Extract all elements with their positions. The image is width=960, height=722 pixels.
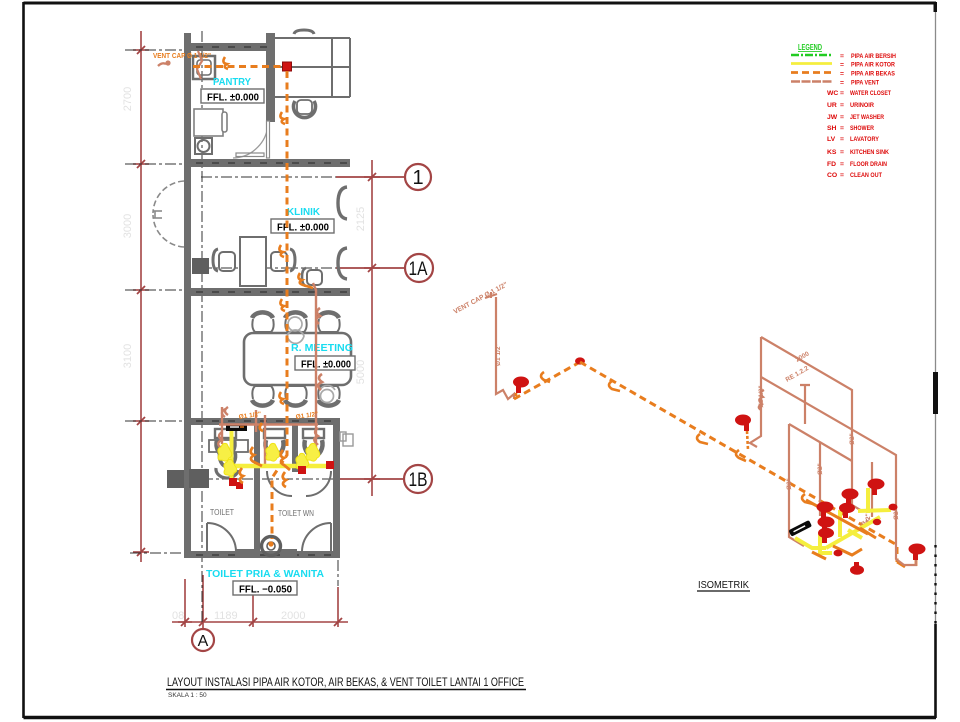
svg-text:2000: 2000 — [281, 610, 305, 622]
svg-text:1A: 1A — [409, 259, 428, 280]
svg-text:CO: CO — [827, 172, 837, 179]
svg-text:WC: WC — [827, 90, 838, 97]
svg-text:Ø2": Ø2" — [786, 478, 793, 490]
svg-text:R. MEETING: R. MEETING — [291, 343, 353, 354]
svg-text:=: = — [840, 125, 844, 132]
svg-text:1B: 1B — [409, 470, 428, 491]
svg-text:1189: 1189 — [214, 610, 238, 622]
svg-text:=: = — [840, 90, 844, 97]
svg-text:UR: UR — [827, 102, 837, 109]
svg-text:FFL. −0.050: FFL. −0.050 — [239, 585, 292, 596]
svg-text:FFL. ±0.000: FFL. ±0.000 — [301, 360, 351, 371]
svg-text:SKALA 1 : 50: SKALA 1 : 50 — [168, 692, 207, 699]
svg-text:FD: FD — [827, 161, 836, 168]
svg-text:SH: SH — [827, 125, 837, 132]
svg-text:=: = — [840, 136, 844, 143]
svg-text:FFL. ±0.000: FFL. ±0.000 — [207, 93, 259, 104]
svg-text:=: = — [840, 62, 844, 69]
svg-text:=: = — [840, 102, 844, 109]
svg-text:TOILET PRIA & WANITA: TOILET PRIA & WANITA — [206, 568, 324, 580]
svg-text:3000: 3000 — [122, 214, 134, 238]
svg-text:Ø2 1/2": Ø2 1/2" — [758, 385, 765, 408]
svg-text:CLEAN OUT: CLEAN OUT — [850, 172, 883, 179]
svg-text:JW: JW — [827, 114, 838, 121]
svg-text:WATER CLOSET: WATER CLOSET — [850, 90, 892, 97]
svg-text:2125: 2125 — [355, 207, 367, 231]
svg-text:TOILET WN: TOILET WN — [278, 508, 314, 518]
svg-text:PIPA AIR BEKAS: PIPA AIR BEKAS — [851, 71, 895, 78]
svg-text:Ø1 1/2": Ø1 1/2" — [495, 343, 502, 366]
svg-text:PANTRY: PANTRY — [213, 77, 251, 88]
svg-text:TOILET: TOILET — [210, 507, 234, 517]
svg-text:=: = — [840, 114, 844, 121]
svg-text:=: = — [840, 161, 844, 168]
svg-text:08: 08 — [172, 610, 184, 622]
svg-text:PIPA AIR BERSIH: PIPA AIR BERSIH — [851, 53, 896, 60]
svg-text:=: = — [840, 149, 844, 156]
svg-text:=: = — [840, 172, 844, 179]
svg-text:5000: 5000 — [355, 360, 367, 384]
svg-text:ISOMETRIK: ISOMETRIK — [698, 579, 749, 591]
svg-text:Ø2": Ø2" — [849, 433, 856, 445]
svg-text:KITCHEN SINK: KITCHEN SINK — [850, 149, 889, 156]
svg-text:=: = — [840, 53, 844, 60]
svg-text:Ø2": Ø2" — [817, 463, 824, 475]
svg-text:LV: LV — [827, 136, 836, 143]
svg-text:=: = — [840, 71, 844, 78]
svg-text:SHOWER: SHOWER — [850, 125, 874, 132]
svg-text:JET WASHER: JET WASHER — [850, 114, 884, 121]
svg-text:LEGEND: LEGEND — [798, 42, 822, 52]
svg-text:A: A — [198, 633, 209, 650]
svg-text:=: = — [840, 80, 844, 87]
svg-text:URINOIR: URINOIR — [850, 102, 874, 109]
svg-text:PIPA AIR KOTOR: PIPA AIR KOTOR — [851, 62, 895, 69]
svg-text:PIPA VENT: PIPA VENT — [851, 80, 880, 87]
svg-text:LAVATORY: LAVATORY — [850, 136, 879, 143]
svg-text:FLOOR DRAIN: FLOOR DRAIN — [850, 161, 887, 168]
svg-text:3100: 3100 — [122, 344, 134, 368]
svg-text:LAYOUT INSTALASI PIPA AIR KOTO: LAYOUT INSTALASI PIPA AIR KOTOR, AIR BEK… — [167, 675, 524, 689]
svg-text:FFL. ±0.000: FFL. ±0.000 — [277, 223, 329, 234]
svg-text:KLINIK: KLINIK — [287, 207, 321, 218]
svg-text:KS: KS — [827, 149, 837, 156]
svg-text:1: 1 — [412, 167, 423, 189]
svg-text:2700: 2700 — [122, 87, 134, 111]
